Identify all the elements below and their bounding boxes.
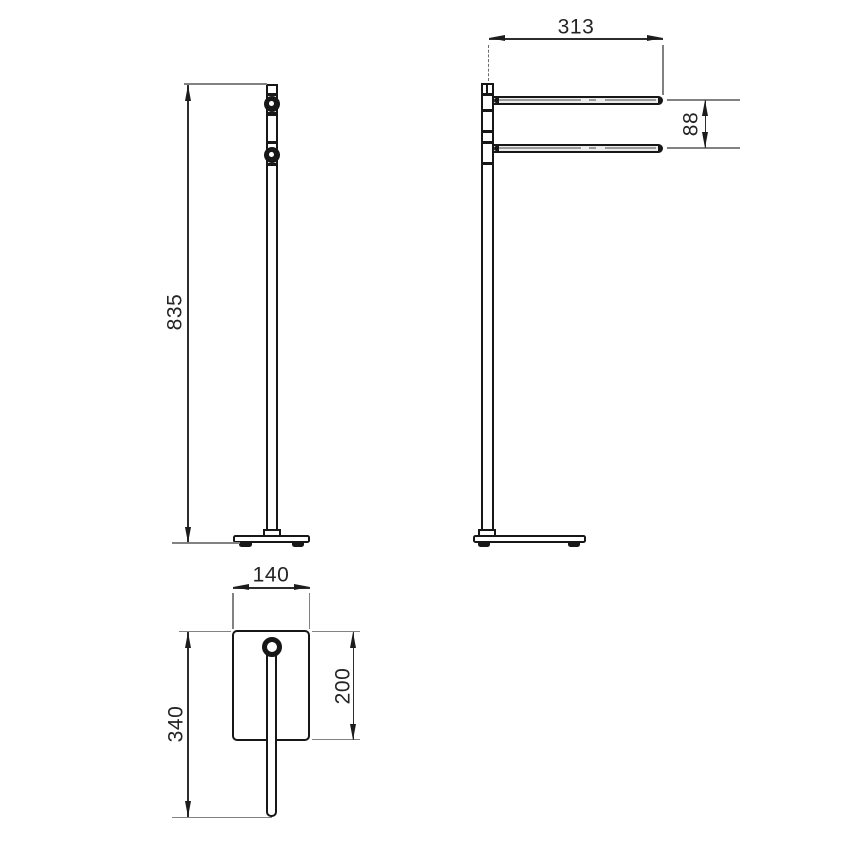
front-pole-band	[266, 141, 278, 145]
dimension-arrow	[185, 632, 191, 648]
front-base-foot	[239, 542, 252, 547]
side-base-foot	[568, 542, 581, 547]
pole-centerline-extension	[488, 45, 489, 81]
side-base-foot	[478, 542, 491, 547]
dim-label-overall-depth: 340	[166, 706, 187, 743]
dimension-arrow	[350, 632, 356, 648]
front-base-foot	[292, 542, 305, 547]
arm-pivot-knob	[264, 96, 280, 112]
dimension-arrow	[647, 35, 663, 41]
front-pole-cap-line	[266, 84, 278, 86]
extension-line	[309, 593, 310, 629]
bar-end-cap	[658, 146, 662, 151]
dimension-line-height	[187, 85, 189, 542]
dimension-arrow	[233, 584, 249, 590]
bar-centerline	[496, 99, 656, 100]
dim-label-base-width: 140	[253, 565, 290, 586]
bar-centerline-break	[581, 146, 605, 151]
front-pole-band	[266, 112, 278, 116]
extension-line	[662, 45, 663, 95]
side-pole-band	[481, 162, 494, 165]
bar-centerline	[496, 147, 656, 148]
dimension-arrow	[702, 100, 708, 116]
dimension-line-arm-length	[489, 38, 663, 40]
dim-label-arm-spacing: 88	[680, 112, 701, 137]
extension-line	[184, 83, 267, 84]
bar-centerline-break	[581, 98, 605, 103]
pole-cross-section	[262, 637, 282, 657]
bar-root-joint	[494, 98, 499, 103]
knob-center-dot	[269, 101, 274, 106]
dim-label-arm-length: 313	[558, 16, 595, 37]
dimension-arrow	[185, 527, 191, 543]
dimension-arrow	[489, 35, 505, 41]
arm-pivot-knob	[264, 147, 280, 163]
dimension-arrow	[702, 132, 708, 148]
dim-label-height: 835	[165, 294, 186, 331]
technical-drawing-canvas: 835 313	[0, 0, 868, 868]
bar-centerline-dash	[589, 99, 596, 100]
side-pole-band	[481, 130, 494, 133]
dimension-line-overall-depth	[187, 632, 189, 817]
dimension-arrow	[350, 724, 356, 740]
extension-line	[232, 593, 233, 629]
towel-bar-plan	[266, 649, 277, 817]
front-pole-band	[266, 163, 278, 167]
side-pole-band	[481, 109, 494, 112]
dimension-arrow	[185, 85, 191, 101]
dimension-arrow	[294, 584, 310, 590]
towel-bar-upper	[492, 96, 663, 105]
bar-centerline-dash	[589, 147, 596, 148]
bar-end-cap	[658, 98, 662, 103]
dimension-arrow	[185, 801, 191, 817]
towel-bar-lower	[492, 144, 663, 153]
dim-label-base-depth: 200	[332, 668, 353, 705]
extension-line	[172, 542, 240, 543]
knob-center-dot	[269, 152, 274, 157]
bar-root-joint	[494, 146, 499, 151]
